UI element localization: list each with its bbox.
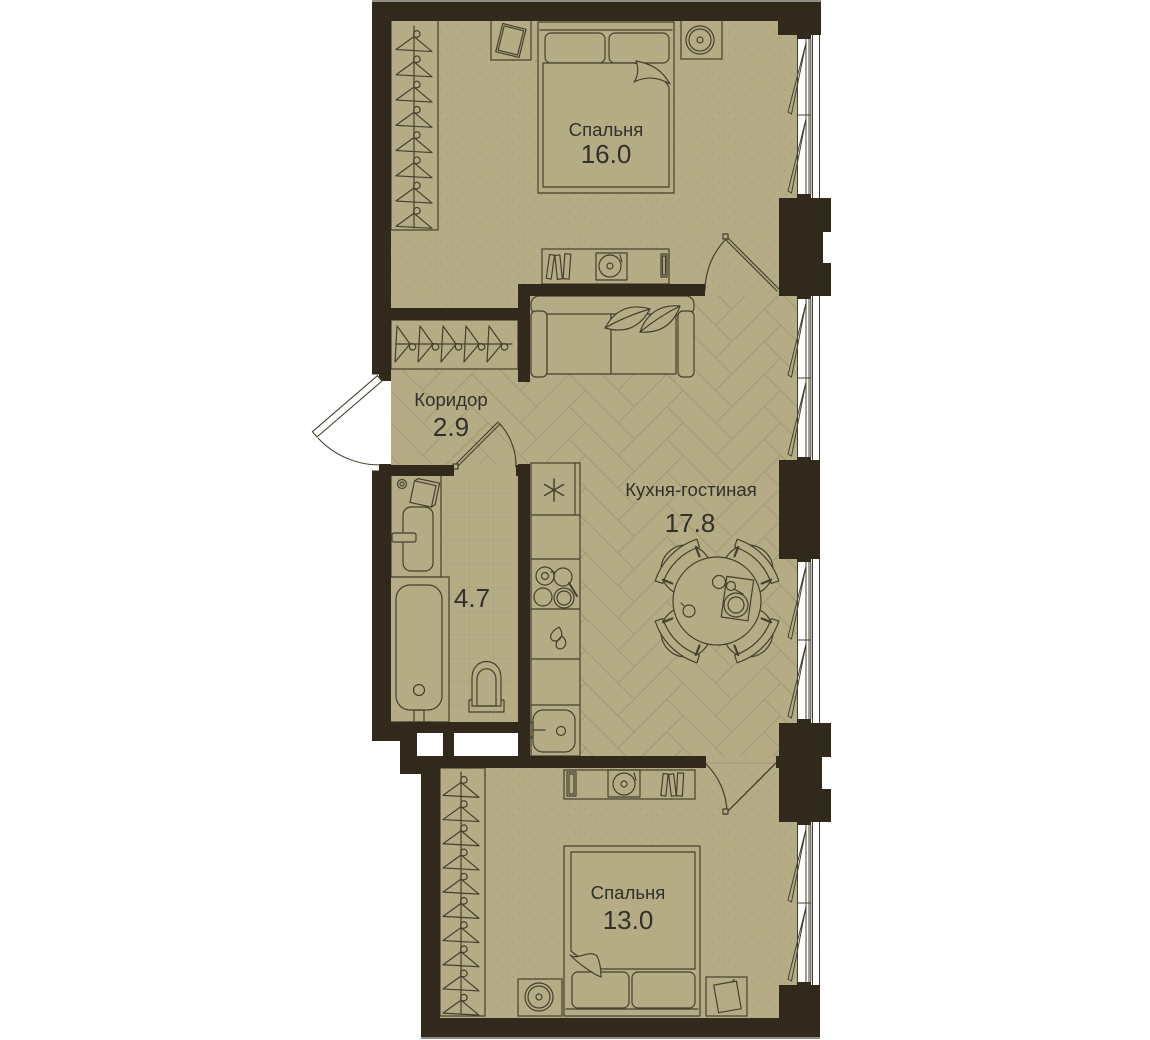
svg-text:Спальня: Спальня: [591, 882, 666, 903]
svg-text:4.7: 4.7: [454, 583, 490, 613]
svg-text:16.0: 16.0: [581, 139, 632, 169]
svg-text:17.8: 17.8: [665, 508, 716, 538]
svg-text:Кухня-гостиная: Кухня-гостиная: [625, 479, 757, 500]
svg-text:13.0: 13.0: [603, 905, 654, 935]
svg-text:Спальня: Спальня: [569, 119, 644, 140]
svg-text:2.9: 2.9: [433, 412, 469, 442]
svg-text:Коридор: Коридор: [414, 389, 487, 410]
